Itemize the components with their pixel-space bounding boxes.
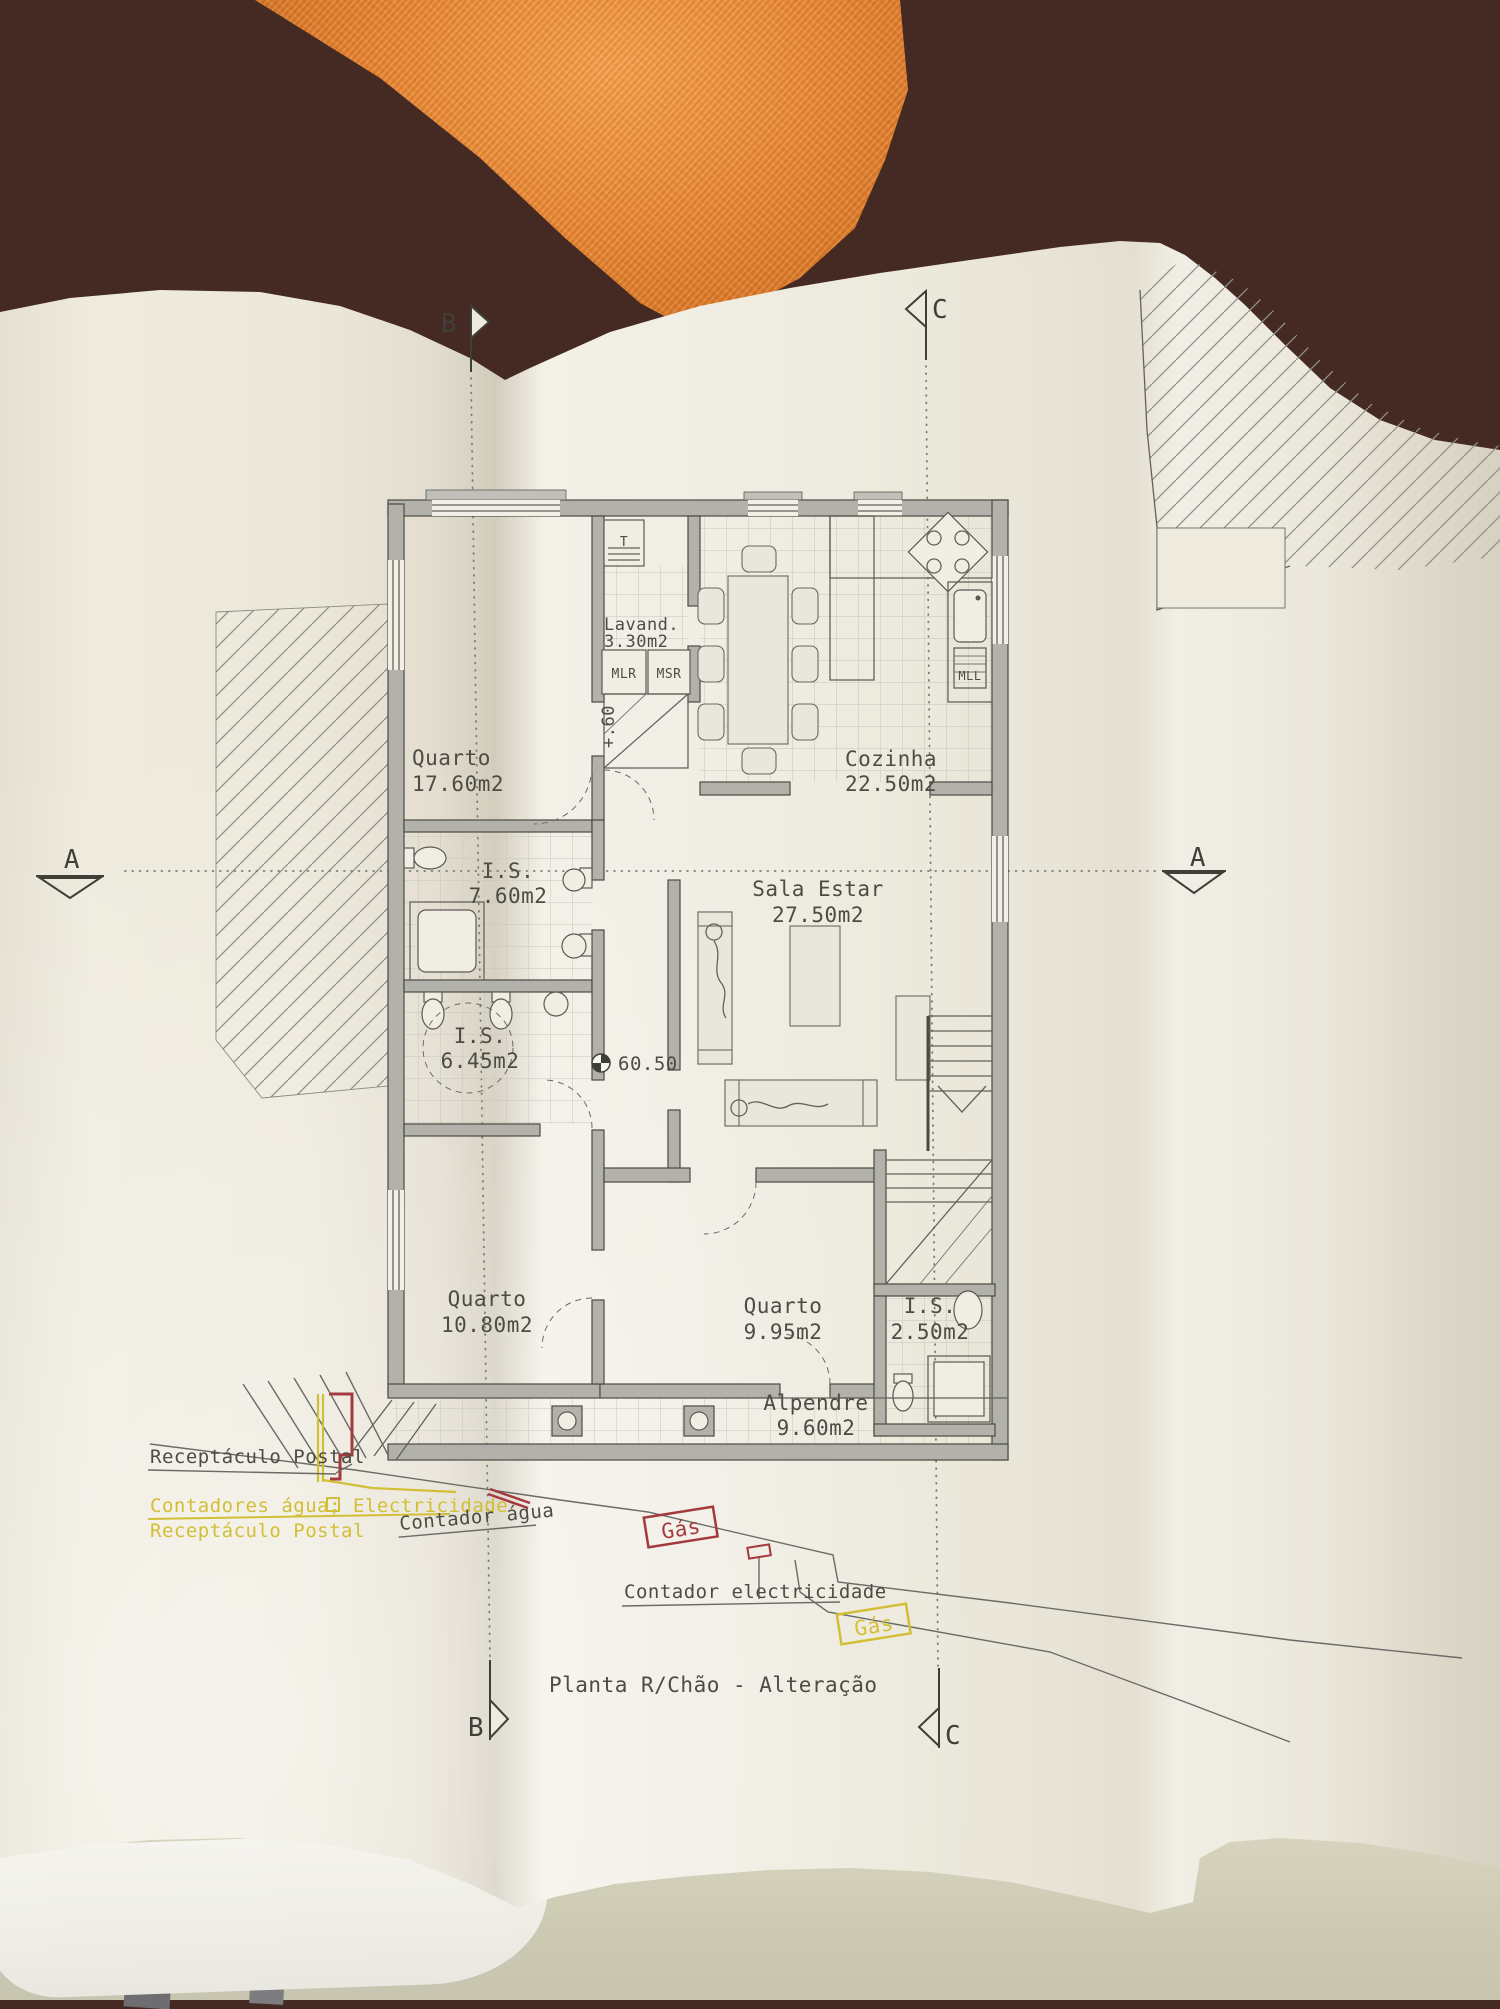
room-label-is1-name: I.S. xyxy=(482,859,535,883)
room-label-is1-area: 7.60m2 xyxy=(469,884,548,908)
step-level-label: +.60 xyxy=(599,705,619,748)
room-label-quarto3-area: 9.95m2 xyxy=(744,1320,823,1344)
gas-box-red: Gás xyxy=(644,1507,718,1548)
note-postal-existing: Receptáculo Postal xyxy=(150,1446,365,1468)
room-label-quarto2-area: 10.80m2 xyxy=(441,1313,533,1337)
room-label-sala-name: Sala Estar xyxy=(752,877,883,901)
living-room-furniture xyxy=(698,912,930,1126)
room-label-quarto1-area: 17.60m2 xyxy=(412,772,504,796)
room-label-cozinha-area: 22.50m2 xyxy=(845,772,937,796)
room-label-is2-name: I.S. xyxy=(454,1024,507,1048)
room-label-cozinha-name: Cozinha xyxy=(845,747,937,771)
bottom-notes: Receptáculo Postal Contadores água; Elec… xyxy=(148,1446,887,1697)
room-label-quarto2-name: Quarto xyxy=(448,1287,527,1311)
room-label-is2-area: 6.45m2 xyxy=(441,1049,520,1073)
section-marker-a-right: A xyxy=(1162,843,1226,893)
room-label-lavand-area: 3.30m2 xyxy=(604,632,668,652)
section-letter-b-top: B xyxy=(441,309,457,339)
section-letter-a-right: A xyxy=(1190,843,1206,873)
dishwasher-label: MLL xyxy=(958,669,981,683)
section-marker-a-left: A xyxy=(36,845,104,898)
hatch-area-top-right xyxy=(1140,258,1500,610)
water-heater-label: T xyxy=(620,535,628,550)
elevation-marker xyxy=(592,1054,610,1072)
section-letter-b-bottom: B xyxy=(468,1713,484,1743)
gas-box-yellow: Gás xyxy=(837,1604,911,1645)
dryer-label: MSR xyxy=(657,667,682,682)
ground-level-label: 60.50 xyxy=(618,1053,678,1075)
room-label-quarto3-name: Quarto xyxy=(744,1294,823,1318)
floor-plan-drawing: Gás Gás B C A A B C Quarto 17.60m2 Lav xyxy=(0,0,1500,2000)
section-letter-c-top: C xyxy=(932,295,948,325)
drawing-title: Planta R/Chão - Alteração xyxy=(549,1673,878,1697)
section-letter-c-bottom: C xyxy=(945,1721,961,1751)
room-label-alpendre-name: Alpendre xyxy=(763,1391,868,1415)
room-label-sala-area: 27.50m2 xyxy=(772,903,864,927)
note-electricity-meter: Contador electricidade xyxy=(624,1581,887,1603)
section-marker-b-bottom: B xyxy=(468,1660,508,1743)
section-letter-a-left: A xyxy=(64,845,80,875)
room-label-is3-name: I.S. xyxy=(904,1294,957,1318)
note-postal-new: Receptáculo Postal xyxy=(150,1520,365,1542)
section-marker-c-bottom: C xyxy=(919,1668,961,1751)
stairs-lower xyxy=(886,1160,992,1284)
room-label-alpendre-area: 9.60m2 xyxy=(777,1416,856,1440)
washer-label: MLR xyxy=(612,667,637,682)
room-label-quarto1-name: Quarto xyxy=(412,746,491,770)
hatch-area-left xyxy=(216,604,388,1098)
section-marker-c-top: C xyxy=(906,291,948,360)
stairs-upper xyxy=(928,1016,992,1151)
room-label-is3-area: 2.50m2 xyxy=(891,1320,970,1344)
section-marker-b-top: B xyxy=(441,306,489,372)
